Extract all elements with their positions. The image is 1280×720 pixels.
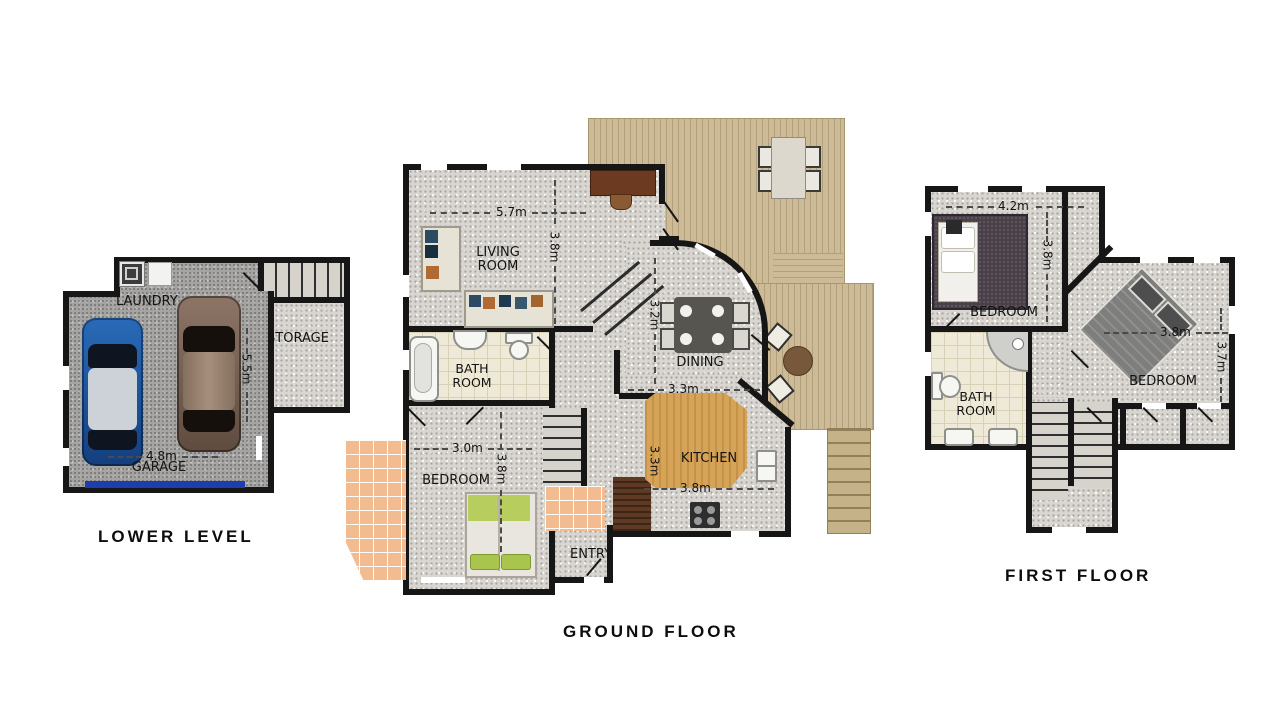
car-blue-rear-window <box>88 430 137 450</box>
dim-line <box>1046 274 1048 322</box>
wall <box>1112 444 1235 450</box>
bedroom-depth-dim: 3.8m <box>494 454 508 485</box>
garage-depth-dim: 5.5m <box>239 354 253 385</box>
bed1-mattress <box>938 222 978 302</box>
dining-width-dim: 3.3m <box>668 382 699 396</box>
garage-window <box>63 448 69 466</box>
vanity-sink <box>988 428 1018 446</box>
stair-door-opening <box>1052 527 1086 533</box>
window <box>731 531 759 537</box>
lower-level-title: LOWER LEVEL <box>98 527 254 547</box>
car-blue <box>82 318 143 466</box>
dim-line <box>430 212 490 214</box>
shower-head <box>1012 338 1024 350</box>
bath-label-f: BATH ROOM <box>950 390 1002 417</box>
wall <box>581 408 587 496</box>
window <box>1022 186 1046 192</box>
bedroom1-label: BEDROOM <box>968 306 1040 320</box>
dim-line <box>704 389 760 391</box>
plate <box>712 333 724 345</box>
dim-line <box>1046 212 1048 242</box>
bedroom1-depth-dim: 3.8m <box>1040 240 1054 271</box>
dim-line <box>500 412 502 450</box>
bath-label-g: BATH ROOM <box>446 362 498 389</box>
bed-pillow <box>470 554 500 570</box>
dim-line <box>1220 308 1222 330</box>
wall <box>1062 266 1068 324</box>
floor-plan-page: { "lower_level": { "title": "LOWER LEVEL… <box>0 0 1280 720</box>
car-brown-rear-window <box>183 410 235 432</box>
plate <box>712 305 724 317</box>
desk-chair <box>610 194 632 210</box>
sofa-pillow <box>499 295 511 307</box>
laundry-label: LAUNDRY <box>116 295 176 309</box>
laundry-sink-basin <box>125 267 138 280</box>
plate <box>680 305 692 317</box>
dim-line <box>182 456 218 458</box>
storage-label: STORAGE <box>266 332 330 346</box>
window <box>1229 306 1235 334</box>
bedroom2-depth-dim: 3.7m <box>1214 342 1228 373</box>
dim-line <box>716 488 774 490</box>
first-floor-title: FIRST FLOOR <box>1005 566 1151 586</box>
car-blue-windshield <box>88 344 137 368</box>
wall <box>614 350 620 394</box>
window <box>421 164 447 170</box>
sofa-pillow <box>531 295 543 307</box>
dim-line <box>1104 332 1156 334</box>
wall <box>1112 398 1118 533</box>
garage-window <box>256 436 262 460</box>
outdoor-table <box>771 137 806 199</box>
dining-chair <box>732 302 750 324</box>
bedroom2-label: BEDROOM <box>1126 375 1200 389</box>
dining-table <box>674 297 732 353</box>
dim-line <box>1196 332 1228 334</box>
washing-machine <box>148 262 172 286</box>
stair-flight <box>1032 402 1068 500</box>
garage-window <box>63 366 69 390</box>
sofa-large <box>464 290 554 328</box>
window <box>1194 257 1220 263</box>
dining-label: DINING <box>672 356 728 370</box>
deck-stairs <box>827 428 871 534</box>
dim-line <box>1220 378 1222 402</box>
car-brown <box>177 296 241 452</box>
bedroom-width-dim: 3.0m <box>452 441 483 455</box>
dim-line <box>246 328 248 354</box>
ground-floor-title: GROUND FLOOR <box>563 622 739 642</box>
desk <box>590 170 656 196</box>
bathtub <box>409 336 439 402</box>
dim-line <box>500 490 502 552</box>
dim-line <box>654 258 656 294</box>
window <box>925 212 931 236</box>
burner <box>694 506 702 514</box>
window <box>421 577 465 583</box>
sofa-pillow <box>483 297 495 309</box>
dim-line <box>654 334 656 384</box>
wall <box>1180 409 1186 444</box>
plate <box>680 333 692 345</box>
wall-opening <box>622 240 650 246</box>
dim-line <box>554 180 556 224</box>
living-width-dim: 5.7m <box>496 205 527 219</box>
entry-label: ENTRY <box>566 548 616 562</box>
cooktop <box>690 502 720 528</box>
living-label: LIVING ROOM <box>466 246 530 274</box>
kitchen-label: KITCHEN <box>676 452 742 466</box>
wall <box>1120 409 1126 444</box>
kitchen-sink <box>756 465 777 482</box>
living-depth-dim: 3.8m <box>547 232 561 263</box>
window <box>403 275 409 297</box>
dim-line <box>246 392 248 422</box>
entry-stairs <box>543 408 583 492</box>
kitchen-width-dim: 3.8m <box>680 481 711 495</box>
kitchen-depth-dim: 3.3m <box>647 446 661 477</box>
car-brown-windshield <box>183 326 235 352</box>
bedroom1-width-dim: 4.2m <box>998 199 1029 213</box>
dim-line <box>1036 206 1084 208</box>
vanity-sink <box>944 428 974 446</box>
burner <box>707 506 715 514</box>
exterior-mask <box>613 537 665 583</box>
sofa-pillow <box>469 295 481 307</box>
bedroom-label-g: BEDROOM <box>420 474 492 488</box>
burner <box>707 517 715 525</box>
wall <box>1229 257 1235 450</box>
window <box>958 186 988 192</box>
sofa-pillow <box>515 297 527 309</box>
garage-top-wall <box>63 291 120 297</box>
dim-line <box>488 448 532 450</box>
garage-door <box>85 481 245 488</box>
entry-wood-floor <box>613 477 651 531</box>
dim-line <box>108 456 142 458</box>
sofa-pillow <box>426 266 439 279</box>
dim-line <box>628 389 664 391</box>
cafe-table <box>783 346 813 376</box>
bed1-pillow <box>941 251 975 273</box>
wall <box>659 164 665 204</box>
patio-tiles <box>345 440 406 580</box>
sofa-small <box>421 226 461 292</box>
sofa-pillow <box>425 245 438 258</box>
dim-line <box>554 266 556 324</box>
dim-line <box>532 212 586 214</box>
bathtub-basin <box>414 343 432 393</box>
dim-line <box>946 206 994 208</box>
entry-door-opening <box>584 577 604 583</box>
bed-pillow <box>501 554 531 570</box>
bedroom2-width-dim: 3.8m <box>1160 325 1191 339</box>
wall <box>613 531 791 537</box>
entry-tile <box>545 486 605 531</box>
nightstand <box>946 220 962 234</box>
dim-line <box>644 488 676 490</box>
burner <box>694 517 702 525</box>
dining-chair <box>732 328 750 350</box>
laundry-sink <box>120 262 144 286</box>
dim-line <box>414 448 448 450</box>
window <box>487 164 521 170</box>
window <box>1140 257 1168 263</box>
wall <box>925 186 1105 192</box>
upper-deck-steps <box>773 253 843 283</box>
sofa-pillow <box>425 230 438 243</box>
car-brown-roof <box>183 352 235 410</box>
car-blue-roof <box>88 368 137 430</box>
toilet-bowl <box>509 340 529 360</box>
dining-depth-dim: 3.2m <box>647 300 661 331</box>
wall <box>785 427 791 537</box>
garage-label: GARAGE <box>130 461 188 475</box>
